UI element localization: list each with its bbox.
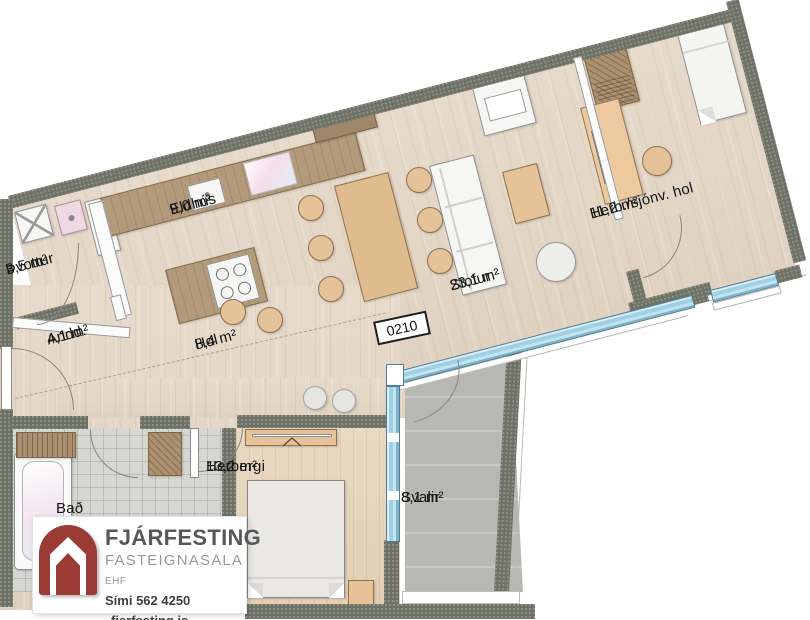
wall-west-lower [0,409,13,607]
logo-suffix: EHF [105,576,127,587]
bar-stool [220,299,246,325]
dining-chair [318,276,344,302]
window-frame [387,491,399,500]
wall-bedroom-southeast [384,540,399,606]
bedroom-door-leaf [190,428,199,478]
agency-logo: FJÁRFESTING FASTEIGNASALA EHF Sími 562 4… [33,517,246,613]
wall-bath-north [12,416,88,429]
desk-chair [642,146,672,176]
nightstand [348,580,374,606]
burner-icon [232,262,248,278]
blanket-fold [329,583,344,598]
blanket-line [248,577,344,579]
pouf [303,386,327,410]
logo-subtitle-text: FASTEIGNASALA [105,552,242,569]
window-bedroom-balcony [386,386,400,542]
room-area: 13,2 m² [206,458,257,476]
window-frame [387,433,399,442]
bathroom-closet [148,432,182,476]
balcony-threshold [402,591,520,604]
blanket-line [683,40,730,54]
hanger-icon [282,437,302,447]
dining-chair [406,167,432,193]
wall-bath-north-2 [140,416,190,429]
radiator [16,432,76,458]
room-name: Bað [56,500,83,518]
entrance-door-leaf [1,346,12,410]
dining-chair [308,235,334,261]
logo-phone: Sími 562 4250 [105,593,190,608]
wall-south [245,604,535,619]
wall-bedroom-north [237,415,387,428]
blanket-fold [248,583,263,598]
room-area: 8,1 m² [401,489,444,507]
drain-icon [68,214,75,221]
floor-plan: Þvottur 3,5 m² Eldhús 9,0 m² Andd. 4,1 m… [0,0,810,620]
logo-text-block: FJÁRFESTING FASTEIGNASALA EHF Sími 562 4… [105,525,243,607]
round-table [536,242,576,282]
logo-subtitle: FASTEIGNASALA EHF [105,551,243,591]
pouf [332,389,356,413]
tv-screen [484,89,527,122]
logo-brand: FJÁRFESTING [105,525,243,551]
burner-icon [214,266,230,282]
logo-contact: Sími 562 4250 fjarfesting.is [105,591,243,620]
dining-chair [417,207,443,233]
kitchen-window [243,151,298,196]
double-bed [247,480,345,598]
bedroom-wardrobe [245,429,337,446]
bar-stool [257,307,283,333]
dining-chair [427,248,453,274]
dining-chair [298,195,324,221]
logo-website: fjarfesting.is [105,613,188,620]
burner-icon [237,280,253,296]
logo-house-icon [39,525,97,595]
